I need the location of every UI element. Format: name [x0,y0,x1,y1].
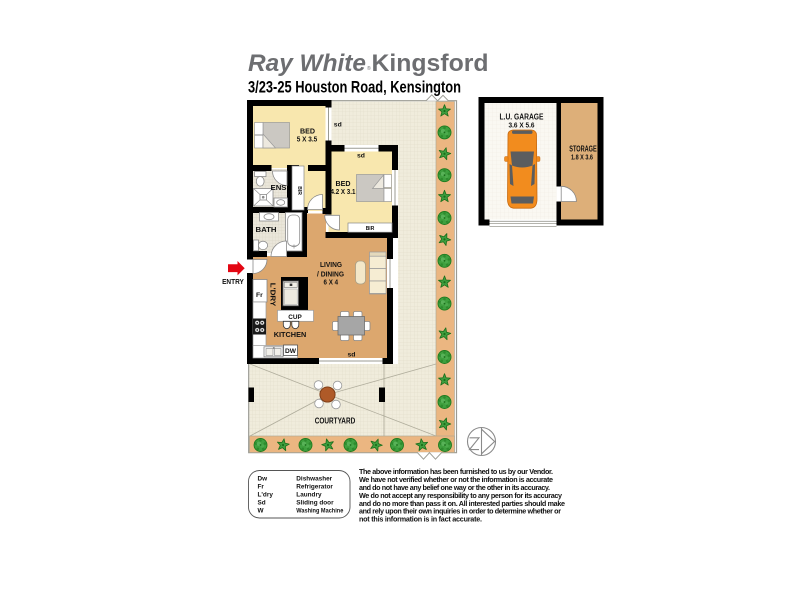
svg-text:Sliding door: Sliding door [296,499,334,506]
svg-text:W: W [258,507,265,514]
svg-text:Dishwasher: Dishwasher [296,476,332,483]
svg-text:sd: sd [357,153,365,160]
svg-text:not this information is in fac: not this information is in fact accurate… [359,515,482,524]
svg-text:3.6 X 5.6: 3.6 X 5.6 [509,120,535,129]
svg-text:ENS: ENS [271,183,287,192]
svg-text:CUP: CUP [288,315,302,321]
svg-text:Fr: Fr [256,292,263,299]
svg-text:Fr: Fr [258,484,265,491]
svg-text:5 X 3.5: 5 X 3.5 [297,137,318,144]
svg-text:L'DRY: L'DRY [269,283,278,307]
svg-text:4.2 X 3.1: 4.2 X 3.1 [331,189,356,196]
svg-text:Sd: Sd [258,499,266,506]
svg-text:L'dry: L'dry [258,492,274,499]
svg-text:BIR: BIR [296,186,302,195]
svg-text:Dw: Dw [258,476,268,483]
svg-text:Laundry: Laundry [296,492,322,499]
svg-text:Ray White: Ray White [248,50,366,77]
svg-text:®: ® [367,65,371,72]
svg-text:sd: sd [348,352,356,359]
svg-text:LIVING: LIVING [320,260,342,269]
svg-text:KITCHEN: KITCHEN [274,330,307,339]
svg-text:BATH: BATH [256,225,277,234]
svg-text:3/23-25 Houston Road, Kensingt: 3/23-25 Houston Road, Kensington [248,78,461,97]
svg-text:ENTRY: ENTRY [222,279,244,286]
svg-text:DW: DW [285,348,297,355]
svg-text:6 X 4: 6 X 4 [324,279,339,286]
svg-text:1.8 X 3.6: 1.8 X 3.6 [571,153,593,162]
svg-text:Refrigerator: Refrigerator [296,484,333,491]
svg-text:BIR: BIR [366,226,375,232]
svg-text:Washing Machine: Washing Machine [296,507,343,514]
svg-text:/ DINING: / DINING [317,270,344,279]
svg-text:BED: BED [300,127,316,136]
svg-text:Kingsford: Kingsford [372,50,489,77]
svg-text:COURTYARD: COURTYARD [315,416,356,426]
svg-text:BED: BED [336,179,352,188]
svg-text:sd: sd [334,122,342,129]
